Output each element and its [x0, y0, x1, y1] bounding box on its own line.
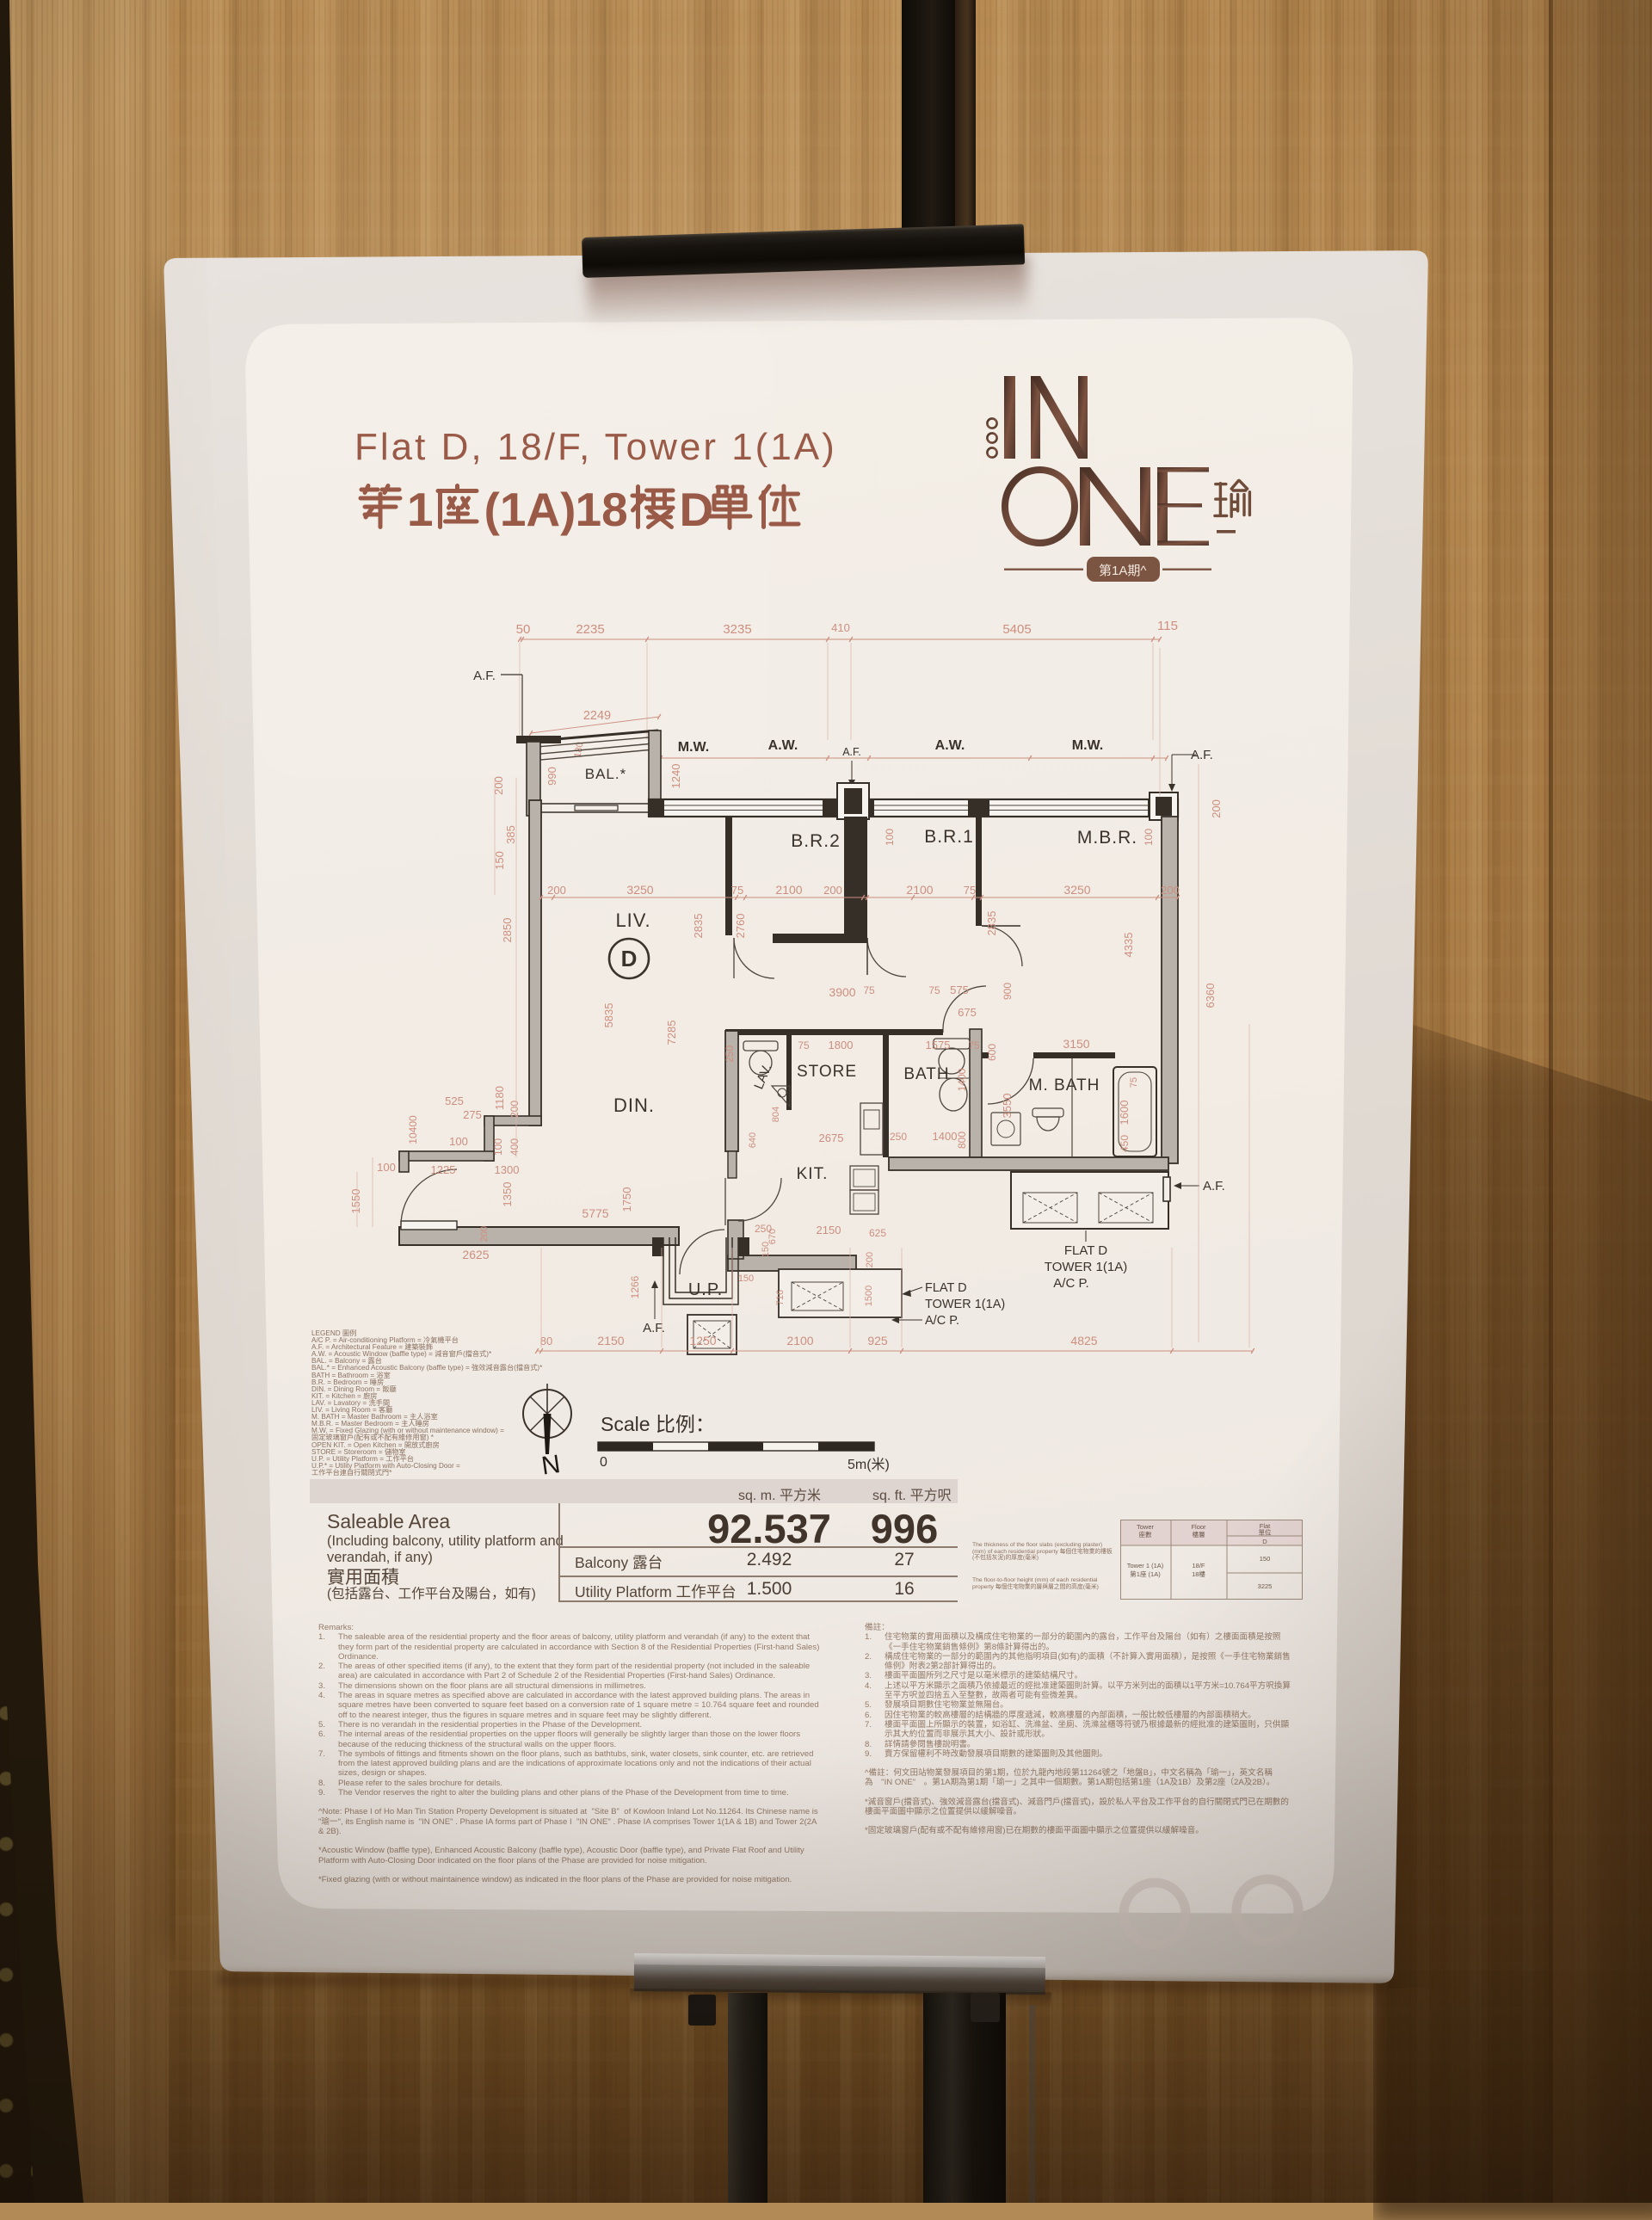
svg-text:STORE: STORE — [797, 1063, 857, 1081]
svg-text:A.W.: A.W. — [768, 738, 798, 753]
svg-text:5775: 5775 — [582, 1206, 608, 1220]
svg-text:200: 200 — [479, 1226, 490, 1242]
svg-text:B.R.2: B.R.2 — [791, 831, 841, 851]
svg-text:N: N — [539, 1450, 562, 1480]
svg-text:2835: 2835 — [985, 911, 998, 936]
svg-text:4335: 4335 — [1122, 933, 1135, 958]
svg-text:75: 75 — [863, 984, 875, 996]
svg-text:150: 150 — [738, 1273, 754, 1284]
svg-text:525: 525 — [445, 1095, 464, 1107]
svg-text:Tower: Tower — [1137, 1523, 1155, 1531]
svg-text:1180: 1180 — [493, 1086, 506, 1110]
svg-text:A.F.: A.F. — [1203, 1179, 1225, 1193]
svg-text:A/C P.: A/C P. — [1053, 1276, 1088, 1291]
svg-text:2760: 2760 — [734, 914, 747, 939]
svg-text:200: 200 — [1161, 884, 1180, 897]
svg-text:275: 275 — [463, 1108, 482, 1121]
svg-text:75: 75 — [1129, 1077, 1139, 1088]
svg-text:804: 804 — [771, 1107, 781, 1122]
svg-text:3225: 3225 — [1258, 1582, 1273, 1590]
svg-text:1750: 1750 — [620, 1187, 633, 1212]
svg-text:200: 200 — [823, 884, 842, 897]
svg-text:第1座 (1A): 第1座 (1A) — [1130, 1569, 1161, 1578]
svg-text:D: D — [621, 946, 638, 971]
svg-text:2675: 2675 — [819, 1132, 844, 1144]
svg-text:A.F.: A.F. — [473, 669, 496, 683]
svg-text:FLAT D: FLAT D — [925, 1281, 967, 1295]
svg-text:3550: 3550 — [1001, 1094, 1014, 1119]
svg-text:B.R.1: B.R.1 — [924, 827, 974, 847]
svg-text:2100: 2100 — [775, 883, 802, 897]
svg-text:1400: 1400 — [933, 1130, 958, 1143]
svg-text:150: 150 — [1260, 1555, 1271, 1563]
svg-text:2249: 2249 — [583, 709, 611, 723]
svg-text:TOWER 1(1A): TOWER 1(1A) — [1045, 1260, 1127, 1274]
svg-text:1266: 1266 — [629, 1275, 641, 1298]
svg-text:625: 625 — [869, 1227, 886, 1239]
svg-text:A.F.: A.F. — [842, 746, 861, 758]
svg-text:75: 75 — [798, 1039, 810, 1051]
svg-text:100: 100 — [1143, 829, 1155, 846]
svg-text:TOWER 1(1A): TOWER 1(1A) — [925, 1298, 1005, 1311]
svg-text:3900: 3900 — [829, 985, 855, 999]
svg-text:50: 50 — [516, 622, 531, 637]
svg-text:675: 675 — [958, 1006, 977, 1019]
svg-text:75: 75 — [968, 1039, 980, 1051]
svg-text:座數: 座數 — [1139, 1530, 1153, 1539]
svg-text:2100: 2100 — [906, 883, 933, 897]
svg-text:250: 250 — [724, 1045, 736, 1063]
svg-text:1550: 1550 — [349, 1189, 362, 1214]
svg-text:3250: 3250 — [1063, 883, 1090, 897]
svg-text:250: 250 — [890, 1131, 907, 1143]
svg-text:1400: 1400 — [956, 1068, 968, 1091]
svg-text:M.B.R.: M.B.R. — [1077, 828, 1137, 848]
svg-text:2850: 2850 — [501, 918, 514, 943]
svg-text:3150: 3150 — [1063, 1037, 1089, 1051]
svg-text:18樓: 18樓 — [1192, 1569, 1205, 1578]
svg-text:樓層: 樓層 — [1193, 1530, 1205, 1539]
svg-text:600: 600 — [986, 1044, 998, 1061]
svg-text:100: 100 — [449, 1135, 468, 1148]
svg-text:385: 385 — [504, 825, 517, 844]
svg-text:5835: 5835 — [602, 1003, 615, 1028]
svg-text:1800: 1800 — [829, 1039, 854, 1051]
svg-text:150: 150 — [761, 1242, 771, 1257]
svg-text:U.P.: U.P. — [688, 1280, 723, 1299]
svg-text:200: 200 — [1210, 799, 1223, 818]
svg-text:7285: 7285 — [665, 1021, 678, 1045]
svg-text:100: 100 — [492, 1138, 504, 1156]
svg-text:75: 75 — [928, 984, 940, 996]
svg-text:1500: 1500 — [864, 1286, 874, 1306]
svg-text:75: 75 — [964, 884, 976, 897]
svg-text:1250: 1250 — [689, 1334, 716, 1347]
svg-text:3250: 3250 — [626, 883, 653, 897]
svg-text:925: 925 — [867, 1334, 888, 1347]
svg-text:200: 200 — [547, 884, 566, 897]
svg-text:800: 800 — [956, 1132, 968, 1149]
svg-text:1600: 1600 — [1118, 1101, 1131, 1125]
svg-text:640: 640 — [748, 1132, 758, 1148]
svg-text:200: 200 — [509, 1101, 521, 1118]
svg-text:200: 200 — [492, 776, 505, 795]
svg-text:2150: 2150 — [597, 1334, 624, 1347]
svg-text:115: 115 — [1157, 619, 1178, 633]
svg-text:1225: 1225 — [431, 1163, 456, 1176]
svg-text:4825: 4825 — [1070, 1334, 1097, 1347]
svg-text:2235: 2235 — [576, 622, 604, 637]
svg-text:2835: 2835 — [692, 914, 705, 939]
svg-text:單位: 單位 — [1259, 1528, 1273, 1537]
svg-text:FLAT D: FLAT D — [1064, 1243, 1107, 1258]
svg-text:990: 990 — [546, 767, 558, 786]
svg-text:Tower 1 (1A): Tower 1 (1A) — [1127, 1562, 1164, 1569]
svg-text:450: 450 — [1119, 1135, 1131, 1152]
svg-text:2625: 2625 — [462, 1248, 489, 1261]
svg-text:BATH: BATH — [903, 1065, 949, 1083]
svg-text:5405: 5405 — [1002, 622, 1031, 637]
svg-text:400: 400 — [509, 1138, 521, 1156]
svg-text:1300: 1300 — [495, 1163, 520, 1176]
svg-text:2100: 2100 — [786, 1334, 813, 1347]
svg-text:D: D — [1262, 1538, 1267, 1545]
svg-text:KIT.: KIT. — [797, 1165, 829, 1183]
svg-text:BAL.*: BAL.* — [585, 766, 626, 782]
svg-text:75: 75 — [731, 884, 743, 897]
svg-text:1575: 1575 — [926, 1039, 951, 1051]
svg-text:M. BATH: M. BATH — [1029, 1076, 1100, 1095]
svg-text:100: 100 — [884, 829, 896, 846]
svg-text:DIN.: DIN. — [613, 1095, 655, 1116]
svg-text:M.W.: M.W. — [678, 740, 709, 755]
svg-text:Floor: Floor — [1191, 1523, 1206, 1531]
svg-text:6360: 6360 — [1204, 984, 1217, 1008]
svg-text:100: 100 — [377, 1161, 396, 1174]
svg-text:18/F: 18/F — [1192, 1562, 1205, 1569]
svg-text:M.W.: M.W. — [1072, 738, 1103, 753]
svg-text:1240: 1240 — [669, 764, 682, 789]
svg-text:1350: 1350 — [501, 1182, 514, 1207]
svg-text:200: 200 — [865, 1252, 875, 1267]
svg-text:900: 900 — [1002, 983, 1014, 1000]
svg-text:LIV.: LIV. — [615, 910, 650, 931]
svg-text:575: 575 — [950, 984, 969, 996]
svg-text:A/C P.: A/C P. — [925, 1314, 959, 1328]
svg-text:716: 716 — [775, 1290, 786, 1305]
svg-text:LAV.: LAV. — [751, 1062, 774, 1091]
svg-text:A.W.: A.W. — [935, 738, 965, 753]
svg-text:3235: 3235 — [723, 622, 751, 637]
svg-text:410: 410 — [831, 621, 850, 634]
svg-text:10400: 10400 — [407, 1115, 419, 1144]
svg-text:2150: 2150 — [817, 1224, 841, 1236]
